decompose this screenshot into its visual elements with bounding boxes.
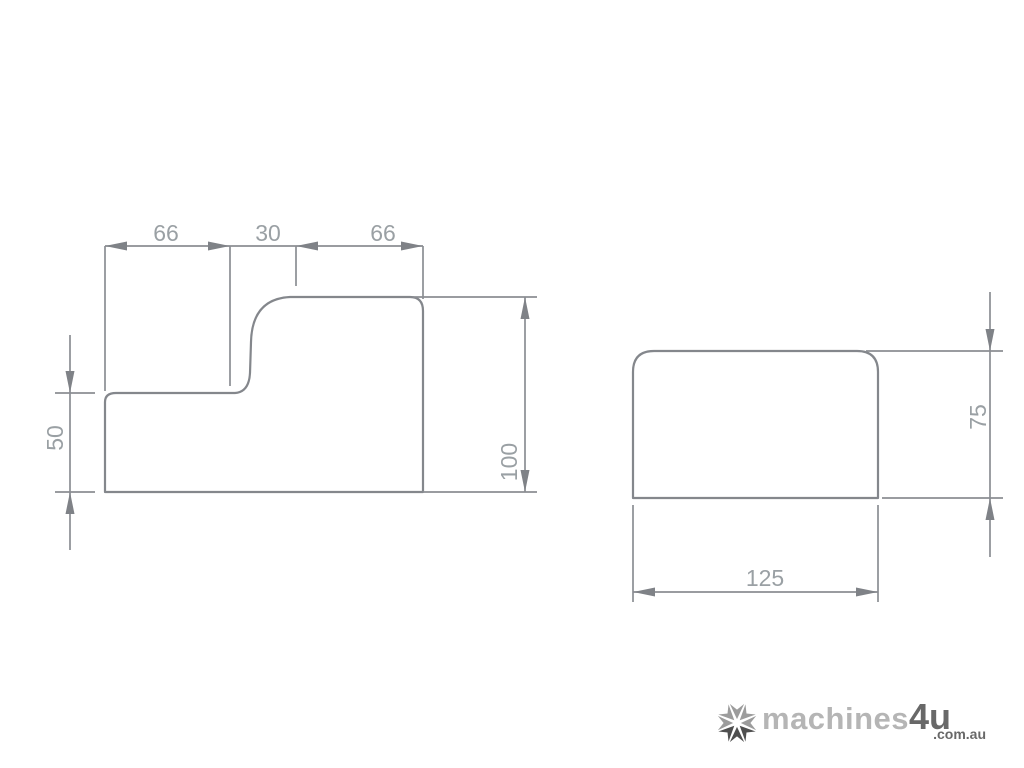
machines4u-watermark: machines4u .com.au — [714, 696, 989, 756]
arrowhead-right — [856, 588, 878, 597]
right-profile — [633, 351, 878, 498]
dim-label-100: 100 — [496, 443, 522, 481]
arrowhead-right — [208, 242, 230, 251]
watermark-brand-text: machines — [762, 701, 909, 736]
watermark-wordmark: machines4u — [762, 696, 951, 738]
overall-height-dimension: 100 — [413, 297, 537, 492]
pad-width-dimension: 125 — [633, 505, 878, 602]
dim-label-30: 30 — [255, 220, 281, 246]
stepped-profile-outline — [105, 297, 423, 492]
pad-height-dimension: 75 — [866, 292, 1003, 557]
arrowhead-up — [66, 492, 75, 514]
arrowhead-down — [66, 371, 75, 393]
technical-drawing: 66 30 66 50 100 — [0, 0, 1024, 768]
dim-label-75: 75 — [965, 404, 991, 430]
dim-label-50: 50 — [42, 425, 68, 451]
drawing-canvas: 66 30 66 50 100 — [0, 0, 1024, 768]
arrowhead-left — [633, 588, 655, 597]
starburst-icon — [714, 699, 760, 747]
arrowhead-down — [986, 329, 995, 351]
dim-label-66-right: 66 — [370, 220, 396, 246]
rectangular-profile-outline — [633, 351, 878, 498]
watermark-tld-text: .com.au — [933, 726, 986, 742]
dim-label-125: 125 — [746, 565, 784, 591]
left-profile — [105, 297, 423, 492]
arrowhead-up — [986, 498, 995, 520]
dim-label-66-left: 66 — [153, 220, 179, 246]
arrowhead-up — [521, 297, 530, 319]
arrowhead-left — [105, 242, 127, 251]
step-height-dimension: 50 — [42, 335, 95, 550]
arrowhead-right — [401, 242, 423, 251]
arrowhead-left — [296, 242, 318, 251]
